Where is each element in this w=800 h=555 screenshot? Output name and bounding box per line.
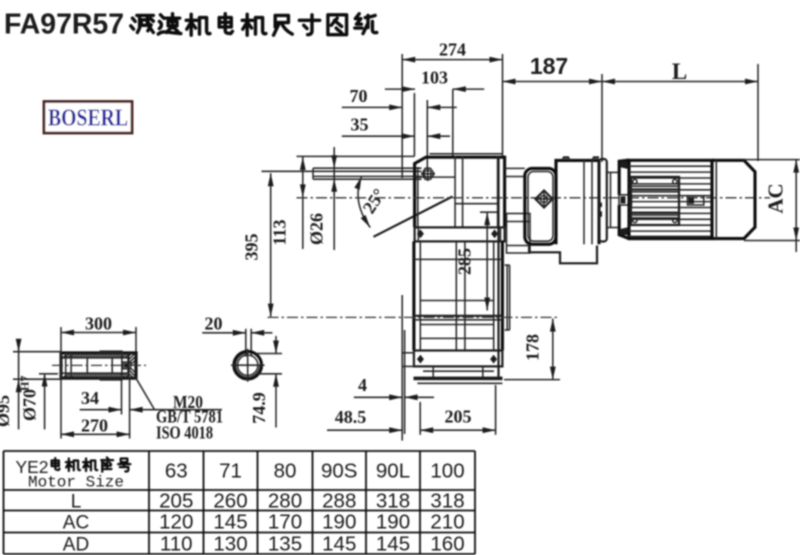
svg-text:48.5: 48.5 xyxy=(335,407,367,427)
svg-text:70: 70 xyxy=(350,86,368,106)
svg-text:L: L xyxy=(71,491,82,512)
svg-text:135: 135 xyxy=(268,532,302,555)
svg-text:260: 260 xyxy=(213,489,247,512)
svg-text:34: 34 xyxy=(81,388,99,408)
svg-text:120: 120 xyxy=(159,511,193,534)
svg-text:210: 210 xyxy=(430,511,464,534)
svg-text:190: 190 xyxy=(376,511,410,534)
svg-text:H7: H7 xyxy=(18,376,32,391)
svg-text:Motor Size: Motor Size xyxy=(28,474,124,492)
svg-text:90L: 90L xyxy=(376,460,410,483)
svg-text:280: 280 xyxy=(268,489,302,512)
svg-text:205: 205 xyxy=(445,407,472,427)
svg-text:74.9: 74.9 xyxy=(249,392,269,424)
svg-text:FA97R57: FA97R57 xyxy=(4,9,124,41)
svg-text:113: 113 xyxy=(270,219,290,245)
svg-text:20: 20 xyxy=(205,314,223,334)
svg-text:BOSERL: BOSERL xyxy=(48,106,128,132)
svg-text:318: 318 xyxy=(376,489,410,512)
svg-text:285: 285 xyxy=(455,248,475,275)
svg-text:90S: 90S xyxy=(321,460,357,483)
svg-text:AD: AD xyxy=(63,534,89,555)
svg-text:Ø26: Ø26 xyxy=(307,213,327,245)
svg-text:AC: AC xyxy=(63,513,89,534)
svg-text:318: 318 xyxy=(430,489,464,512)
svg-text:170: 170 xyxy=(268,511,302,534)
svg-text:145: 145 xyxy=(322,532,356,555)
svg-text:80: 80 xyxy=(274,460,297,483)
svg-text:288: 288 xyxy=(322,489,356,512)
svg-text:AC: AC xyxy=(764,183,788,213)
svg-text:L: L xyxy=(672,59,687,84)
svg-text:270: 270 xyxy=(81,416,108,436)
svg-text:130: 130 xyxy=(213,532,247,555)
svg-text:187: 187 xyxy=(530,53,568,79)
svg-text:160: 160 xyxy=(430,532,464,555)
svg-text:274: 274 xyxy=(439,40,466,60)
svg-text:ISO 4018: ISO 4018 xyxy=(156,423,213,443)
svg-text:Ø95: Ø95 xyxy=(0,395,13,427)
svg-text:25°: 25° xyxy=(359,185,390,217)
svg-text:300: 300 xyxy=(85,314,112,334)
svg-text:100: 100 xyxy=(430,460,464,483)
svg-text:4: 4 xyxy=(358,375,367,395)
svg-text:110: 110 xyxy=(160,532,193,555)
svg-text:190: 190 xyxy=(322,511,356,534)
svg-text:395: 395 xyxy=(242,234,262,261)
svg-text:145: 145 xyxy=(213,511,247,534)
svg-text:Ø70: Ø70 xyxy=(20,389,40,421)
svg-text:178: 178 xyxy=(523,334,543,361)
svg-text:71: 71 xyxy=(219,460,242,483)
svg-text:63: 63 xyxy=(165,460,188,483)
svg-text:103: 103 xyxy=(421,68,448,88)
svg-text:145: 145 xyxy=(376,532,410,555)
svg-text:35: 35 xyxy=(351,115,369,135)
svg-text:205: 205 xyxy=(159,489,193,512)
